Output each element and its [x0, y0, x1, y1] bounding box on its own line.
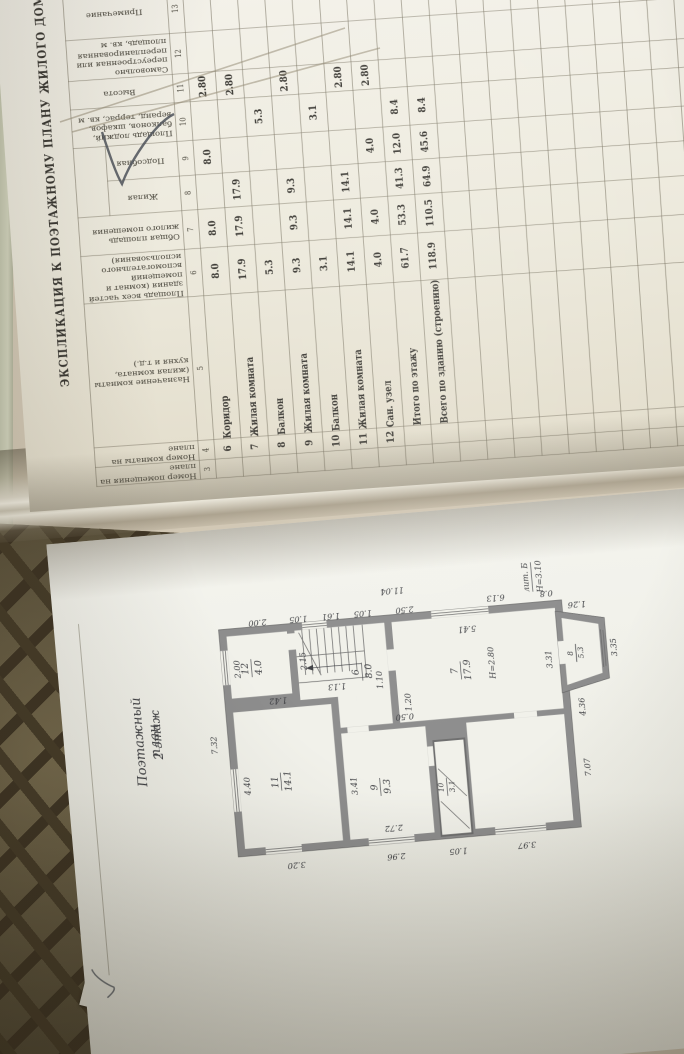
table-cell-aux	[220, 137, 250, 173]
table-cell-empty	[595, 431, 623, 452]
table-cell-empty	[458, 421, 486, 442]
dimension-label: 1.61	[321, 611, 340, 623]
table-cell-empty	[592, 2, 622, 45]
dimension-label: 0.8	[539, 588, 553, 599]
table-cell-room_no	[431, 423, 459, 444]
table-cell-empty	[499, 226, 529, 275]
column-header: Общая площадь жилого помещения	[78, 211, 184, 257]
table-cell-empty	[662, 214, 684, 263]
dimension-label: 4.40	[241, 777, 253, 797]
table-cell-empty	[635, 216, 665, 265]
table-cell-empty	[676, 425, 684, 446]
table-cell-common	[252, 204, 282, 245]
table-cell-empty	[472, 228, 502, 277]
table-cell-living: 64.9	[412, 158, 442, 194]
room-area: 17.9	[462, 659, 475, 681]
table-cell-empty	[627, 108, 657, 144]
table-cell-common: 8.0	[198, 208, 228, 249]
column-header: Площадь всех частей здания (комнат и пом…	[81, 250, 188, 304]
table-cell-empty	[622, 429, 650, 450]
plan-page: Поэтажный план 2 этаж	[46, 480, 684, 1054]
room-number: 10	[436, 782, 446, 792]
table-cell-empty	[543, 75, 573, 116]
litera-text: лит. Б	[519, 562, 532, 592]
table-cell-empty	[677, 37, 684, 67]
table-cell-empty	[521, 150, 551, 186]
room-area: 5.3	[576, 646, 586, 659]
table-cell-empty	[649, 39, 678, 69]
table-cell-aux	[247, 135, 277, 171]
table-cell-empty	[567, 413, 595, 434]
room-number: 6	[351, 669, 362, 676]
dimension-label: 1.10	[374, 670, 386, 689]
table-cell-empty	[553, 222, 583, 271]
column-number: 4	[198, 440, 215, 460]
table-cell-empty	[597, 71, 627, 112]
table-cell-plan_no	[405, 444, 433, 465]
table-cell-empty	[546, 114, 576, 150]
table-cell-room_no: 8	[268, 434, 296, 455]
table-cell-empty	[594, 411, 622, 432]
table-cell-total: 17.9	[228, 245, 258, 294]
table-cell-empty	[622, 41, 651, 71]
table-cell-common: 4.0	[361, 196, 391, 237]
table-cell-living	[250, 169, 280, 205]
table-cell-total: 118.9	[418, 231, 448, 280]
table-cell-plan_no	[351, 448, 379, 469]
table-cell-empty	[459, 440, 487, 461]
dimension-label: 7.07	[581, 757, 593, 777]
table-cell-empty	[651, 67, 681, 108]
room-area: 9.3	[382, 778, 394, 794]
table-cell-empty	[657, 141, 684, 177]
table-cell-empty	[440, 156, 470, 192]
table-cell-empty	[600, 110, 630, 146]
table-cell-common: 110.5	[415, 192, 445, 233]
table-cell-plan_no	[378, 446, 406, 467]
table-cell-empty	[489, 79, 519, 120]
table-cell-empty	[496, 187, 526, 228]
table-cell-total: 9.3	[282, 241, 312, 290]
table-cell-living	[358, 162, 388, 198]
table-cell-empty	[675, 406, 684, 427]
table-cell-plan_no	[297, 451, 325, 472]
room-number: 7	[449, 667, 460, 674]
dimension-label: 1.20	[402, 693, 414, 712]
table-cell-empty	[538, 6, 568, 49]
dimension-label: 3.41	[348, 776, 360, 795]
dimension-label: 1.05	[449, 846, 468, 858]
dimension-label: 2.96	[387, 851, 407, 863]
table-cell-room_no: 10	[322, 430, 350, 451]
table-cell-empty	[654, 106, 684, 142]
table-cell-plan_no	[242, 455, 270, 476]
dimension-label: 2.00	[248, 617, 268, 629]
table-cell-common: 17.9	[225, 206, 255, 247]
table-cell-living: 9.3	[277, 167, 307, 203]
table-cell-empty	[523, 185, 553, 226]
table-cell-empty	[573, 112, 603, 148]
dimension-label: 7.32	[208, 736, 220, 755]
table-cell-empty	[541, 47, 570, 77]
table-cell-empty	[516, 77, 546, 118]
dimension-label: 2.72	[384, 822, 404, 834]
table-cell-empty	[469, 189, 499, 230]
table-cell-empty	[514, 436, 542, 457]
column-header-label: Назначение комнаты (жилая комната, кухня…	[89, 355, 190, 390]
table-cell-empty	[648, 408, 676, 429]
litera-height-text: Н=3.10	[532, 560, 545, 594]
dimension-label: 11.04	[380, 585, 404, 597]
table-cell-common: 14.1	[333, 198, 363, 239]
table-cell-total: 5.3	[255, 243, 285, 292]
table-cell-empty	[487, 51, 516, 81]
room-number: 9	[369, 784, 380, 791]
dimension-label: 3.35	[608, 638, 620, 657]
table-cell-empty	[674, 0, 684, 39]
table-cell-empty	[548, 148, 578, 184]
table-cell-empty	[649, 427, 677, 448]
table-cell-plan_no	[215, 457, 243, 478]
table-cell-empty	[467, 154, 497, 190]
page-edge-lines	[40, 0, 470, 140]
table-cell-empty	[580, 220, 610, 269]
dimension-label: 1.05	[289, 614, 308, 626]
room-number: 8	[566, 650, 575, 656]
table-cell-empty	[632, 177, 662, 218]
table-cell-empty	[647, 0, 677, 41]
dimension-label: 1.13	[328, 681, 347, 693]
room-area: 14.1	[282, 770, 295, 792]
column-header-label: Номер помещения на плане	[96, 461, 196, 486]
column-number: 3	[199, 459, 216, 479]
table-cell-total: 14.1	[336, 237, 366, 286]
table-cell-empty	[578, 181, 608, 222]
table-cell-room_no: 7	[241, 436, 269, 457]
table-cell-empty	[526, 224, 556, 273]
dimension-label: 5.41	[458, 623, 477, 635]
column-header: Назначение комнаты (жилая комната, кухня…	[84, 297, 198, 449]
table-cell-living	[304, 166, 334, 202]
table-cell-empty	[621, 409, 649, 430]
table-cell-living: 14.1	[331, 164, 361, 200]
dimension-label: 0.50	[395, 711, 414, 723]
pen-checkmark-small	[87, 963, 125, 1004]
table-cell-empty	[568, 432, 596, 453]
table-cell-empty	[491, 118, 521, 154]
dimension-label: 1.26	[567, 599, 586, 611]
dimension-label: 6.13	[486, 592, 505, 604]
room-number: 11	[269, 776, 281, 789]
table-cell-empty	[575, 147, 605, 183]
table-cell-living: 41.3	[385, 160, 415, 196]
dimension-label: 1.05	[353, 608, 372, 620]
table-cell-plan_no	[324, 449, 352, 470]
table-cell-empty	[539, 415, 567, 436]
dimension-label: 3.97	[517, 840, 537, 852]
column-header-label: Площадь всех частей здания (комнат и пом…	[82, 250, 184, 303]
table-cell-plan_no	[269, 453, 297, 474]
table-cell-empty	[595, 43, 624, 73]
table-cell-common	[306, 200, 336, 241]
table-cell-total: 3.1	[309, 239, 339, 288]
table-cell-empty	[541, 434, 569, 455]
table-cell-empty	[511, 8, 541, 51]
table-cell-empty	[570, 73, 600, 114]
table-cell-empty	[607, 218, 637, 267]
table-cell-empty	[494, 152, 524, 188]
table-cell-empty	[565, 4, 595, 47]
table-cell-empty	[486, 438, 514, 459]
table-cell-living	[195, 173, 225, 209]
table-cell-empty	[484, 10, 514, 53]
table-cell-common: 53.3	[388, 194, 418, 235]
table-cell-room_no	[404, 425, 432, 446]
table-cell-empty	[445, 230, 475, 279]
table-cell-empty	[518, 116, 548, 152]
table-cell-common: 9.3	[279, 202, 309, 243]
table-cell-empty	[550, 183, 580, 224]
table-cell-empty	[629, 143, 659, 179]
table-cell-total: 8.0	[200, 247, 230, 296]
table-cell-total: 4.0	[363, 235, 393, 284]
table-cell-empty	[442, 191, 472, 232]
table-cell-empty	[512, 417, 540, 438]
table-cell-plan_no	[432, 442, 460, 463]
table-cell-empty	[480, 0, 511, 11]
photo-scene: Поэтажный план 2 этаж	[0, 0, 684, 1054]
table-cell-empty	[514, 49, 543, 79]
table-cell-empty	[602, 145, 632, 181]
dimension-label: 2.00	[231, 660, 243, 680]
table-cell-empty	[624, 69, 654, 110]
dimension-label: 2.15	[297, 652, 309, 672]
table-cell-room_no: 6	[214, 438, 242, 459]
page-frame-line	[78, 624, 110, 975]
table-cell-room_no: 9	[295, 432, 323, 453]
dimension-label: 3.31	[543, 650, 555, 669]
floor-plan-drawing: лит. Б Н=3.10 Н=2.80 1114.1124.068.099.3…	[190, 542, 662, 891]
dimension-label: 3.20	[287, 860, 306, 872]
dimension-label: 1.42	[269, 695, 288, 707]
table-cell-aux: 8.0	[193, 139, 223, 175]
column-header-label: Общая площадь жилого помещения	[80, 221, 180, 246]
table-cell-empty	[659, 175, 684, 216]
table-cell-total: 61.7	[390, 233, 420, 282]
table-cell-room_no: 12	[377, 427, 405, 448]
room-area: 3.1	[447, 780, 457, 792]
table-cell-empty	[619, 0, 649, 43]
dimension-label: 2.50	[395, 604, 415, 616]
table-cell-empty	[568, 45, 597, 75]
dimension-label: 4.36	[576, 697, 588, 717]
column-header: Номер помещения на плане	[95, 460, 200, 486]
room-area: 4.0	[253, 660, 265, 677]
table-cell-room_no: 11	[349, 428, 377, 449]
table-cell-empty	[605, 179, 635, 220]
table-cell-living: 17.9	[222, 171, 252, 207]
table-cell-empty	[485, 419, 513, 440]
